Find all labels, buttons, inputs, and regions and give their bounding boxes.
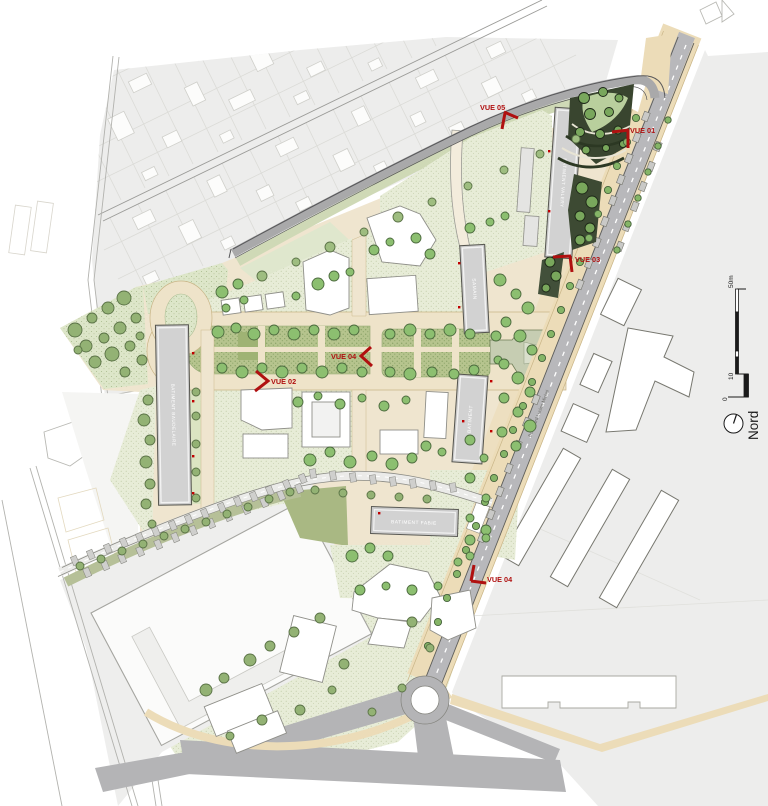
svg-text:VUE 05: VUE 05 [480, 103, 505, 112]
svg-text:0: 0 [722, 397, 729, 401]
svg-text:VUE 03: VUE 03 [575, 255, 600, 264]
svg-text:VUE 04: VUE 04 [331, 352, 357, 361]
svg-text:10: 10 [728, 372, 735, 380]
svg-text:VUE 01: VUE 01 [630, 126, 655, 135]
svg-text:VUE 04: VUE 04 [487, 575, 513, 584]
svg-text:Nord: Nord [746, 411, 761, 440]
svg-text:SAMAIN: SAMAIN [470, 278, 477, 300]
svg-text:VUE 02: VUE 02 [271, 377, 296, 386]
svg-text:50m: 50m [728, 275, 735, 288]
